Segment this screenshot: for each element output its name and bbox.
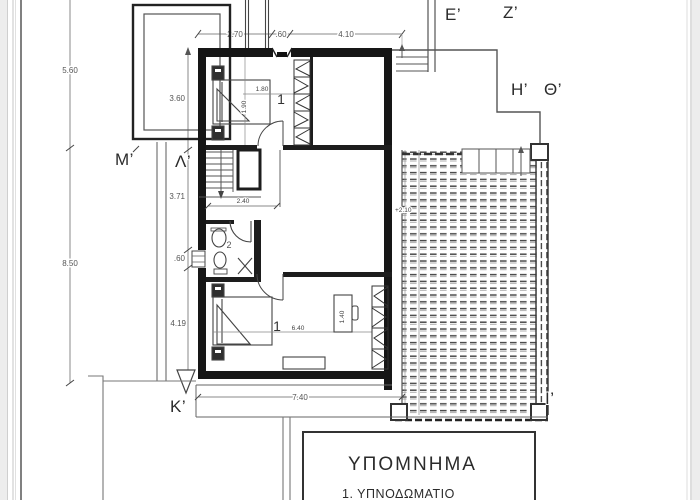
dim-3-71: 3.71 — [169, 192, 185, 201]
legend-box: ΥΠΟΜΝΗΜΑ 1. ΥΠΝΟΔΩΜΑΤΙΟ — [303, 432, 535, 500]
dim-7-40: 7.40 — [292, 393, 308, 402]
dim-bed-180: 1.80 — [256, 86, 269, 93]
section-label-th: Θ’ — [544, 80, 562, 99]
ground-floor-projection — [88, 376, 290, 500]
room-label-bathroom: 2 — [226, 240, 231, 250]
dim-0-60: .60 — [174, 254, 186, 263]
section-label-k: K’ — [170, 397, 186, 416]
section-label-i: I’ — [545, 389, 555, 408]
section-label-z: Z’ — [503, 3, 518, 22]
section-label-l: Λ’ — [175, 152, 191, 171]
upper-closet — [294, 60, 310, 145]
stairwell-void — [238, 150, 260, 189]
terrace-corner-post-left — [391, 404, 407, 420]
sheet-edges — [0, 0, 700, 500]
toilet-icon — [214, 252, 226, 268]
upper-bedroom-door — [258, 121, 283, 146]
dim-left-lower: 8.50 — [62, 259, 78, 268]
dimension-left-column — [66, 0, 74, 386]
room-label-bedroom-upper: 1 — [277, 91, 285, 107]
left-wall-window — [192, 251, 205, 267]
room-label-bedroom-lower: 1 — [273, 318, 281, 334]
section-label-e: E’ — [445, 5, 461, 24]
dim-6-40: 6.40 — [292, 325, 305, 332]
dim-bed-190: 1.90 — [241, 100, 248, 113]
dim-left-upper: 5.60 — [62, 66, 78, 75]
left-projection-lines — [157, 142, 166, 381]
dim-4-19: 4.19 — [170, 319, 186, 328]
floor-plan-viewport: 5.60 8.50 3.60 3.71 .60 4.19 2.70 .60 4.… — [0, 0, 700, 500]
dim-2-40: 2.40 — [237, 198, 250, 205]
legend-item-1: 1. ΥΠΝΟΔΩΜΑΤΙΟ — [342, 487, 455, 500]
dresser — [283, 357, 325, 369]
terrace-elevation: +2.10 — [395, 207, 412, 214]
terrace-steps — [462, 146, 530, 176]
dim-top-0-60: .60 — [275, 30, 287, 39]
section-label-h: H’ — [511, 80, 528, 99]
dim-desk: 1.40 — [339, 310, 346, 323]
section-label-m: M’ — [115, 150, 134, 169]
terrace — [391, 144, 548, 420]
flue-fireplace — [272, 48, 292, 57]
dim-3-60: 3.60 — [169, 94, 185, 103]
section-tick-m — [133, 146, 139, 152]
dim-4-10: 4.10 — [338, 30, 354, 39]
chair — [352, 306, 358, 320]
sink-icon — [212, 229, 226, 247]
floor-plan-canvas: 5.60 8.50 3.60 3.71 .60 4.19 2.70 .60 4.… — [0, 0, 700, 500]
legend-title: ΥΠΟΜΝΗΜΑ — [348, 454, 477, 475]
terrace-pillar — [531, 144, 548, 160]
